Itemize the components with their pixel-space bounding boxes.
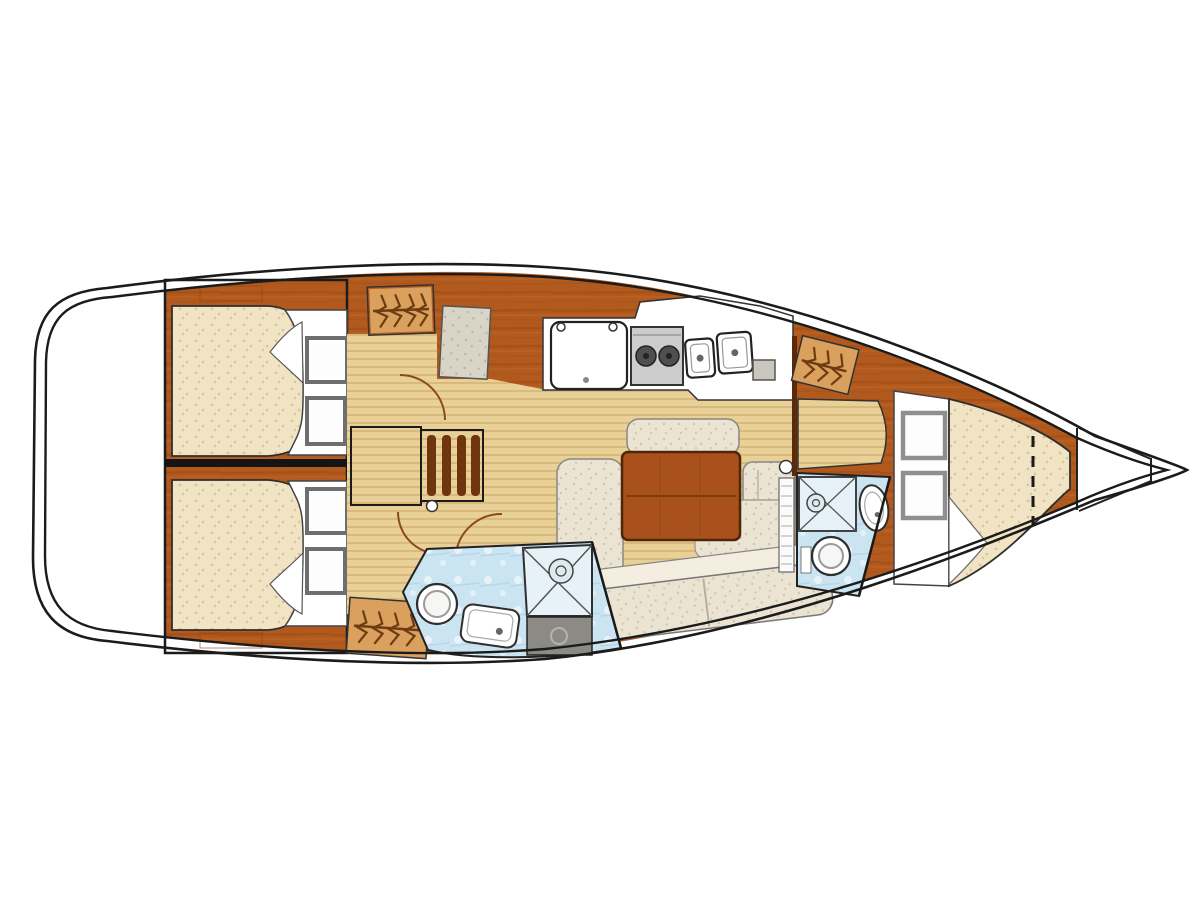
door-knob bbox=[427, 501, 438, 512]
hanging-locker-top bbox=[367, 285, 435, 335]
nav-seat bbox=[439, 306, 491, 379]
pillow bbox=[903, 473, 945, 518]
boat-layout-page bbox=[0, 0, 1200, 900]
pillow bbox=[307, 549, 345, 593]
counter-hatch bbox=[753, 360, 775, 380]
boat-layout-diagram bbox=[0, 0, 1200, 900]
toilet bbox=[417, 584, 457, 624]
shower-pan bbox=[523, 545, 592, 616]
shower-drain bbox=[549, 559, 573, 583]
aft-berth-upper bbox=[172, 306, 305, 456]
stove bbox=[631, 327, 683, 385]
head-sink bbox=[460, 603, 521, 648]
vanity-seat bbox=[798, 399, 886, 469]
aft-berth-lower bbox=[172, 480, 305, 630]
double-sink bbox=[685, 332, 754, 379]
door-knob bbox=[780, 461, 793, 474]
pillow bbox=[307, 489, 347, 533]
pillow bbox=[307, 338, 347, 382]
aft-head bbox=[403, 542, 621, 657]
fridge bbox=[551, 322, 627, 389]
anchor-locker bbox=[1079, 428, 1151, 511]
aft-cabins bbox=[165, 280, 347, 653]
pillow bbox=[903, 413, 945, 458]
settee-back-cushion bbox=[627, 419, 739, 455]
shower-pan-forward bbox=[799, 477, 856, 531]
saloon-table bbox=[622, 452, 740, 540]
cabin-divider-wall bbox=[165, 459, 347, 467]
pillow bbox=[307, 398, 345, 444]
louver-door bbox=[779, 478, 794, 572]
bulkhead-wall bbox=[792, 336, 797, 476]
